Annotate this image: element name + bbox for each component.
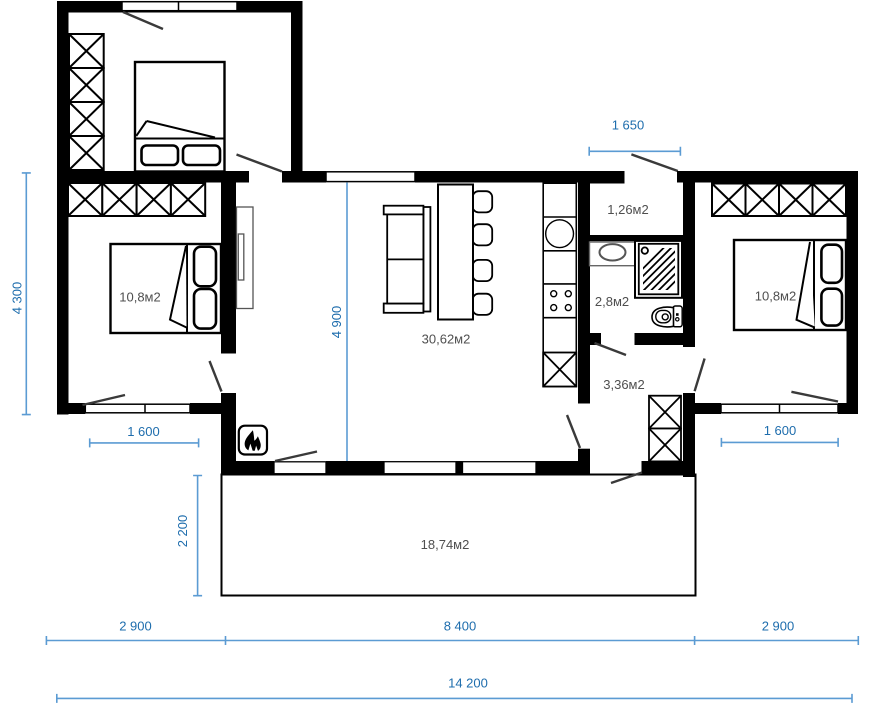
svg-text:2 900: 2 900	[762, 619, 795, 634]
svg-text:2 900: 2 900	[119, 619, 152, 634]
svg-text:1 600: 1 600	[127, 424, 160, 439]
svg-text:1,26м2: 1,26м2	[607, 202, 648, 217]
svg-text:4 900: 4 900	[329, 306, 344, 339]
svg-text:30,62м2: 30,62м2	[422, 332, 471, 347]
svg-text:3,36м2: 3,36м2	[603, 377, 644, 392]
svg-text:8 400: 8 400	[444, 619, 477, 634]
svg-text:18,74м2: 18,74м2	[421, 537, 470, 552]
svg-text:10,8м2: 10,8м2	[755, 289, 796, 304]
svg-text:10,8м2: 10,8м2	[119, 290, 160, 305]
svg-text:2,8м2: 2,8м2	[595, 294, 629, 309]
svg-text:2 200: 2 200	[175, 515, 190, 548]
svg-text:4 300: 4 300	[9, 282, 24, 315]
svg-text:14 200: 14 200	[448, 676, 488, 691]
svg-text:1 600: 1 600	[764, 423, 797, 438]
svg-text:1 650: 1 650	[612, 118, 645, 133]
